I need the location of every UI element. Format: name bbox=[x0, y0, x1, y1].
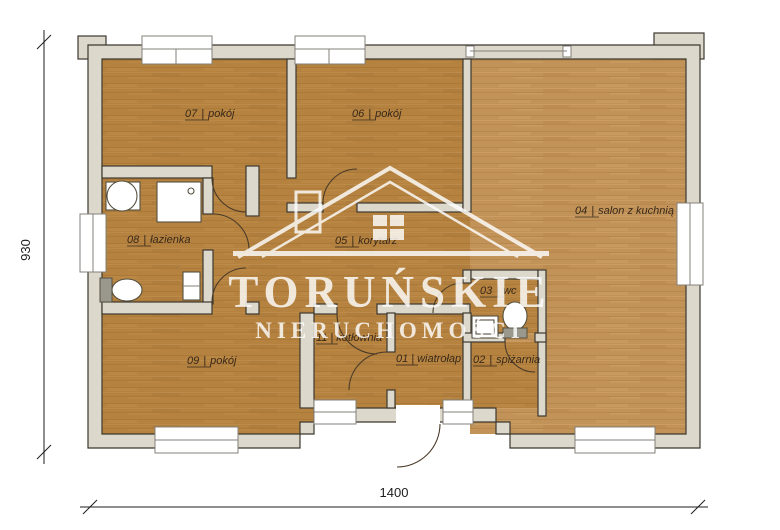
window-room07 bbox=[142, 36, 212, 64]
watermark-title: TORUŃSKIE bbox=[228, 267, 551, 317]
wall-bathroom-right-lower bbox=[203, 250, 213, 304]
floor-plan-canvas: 07|pokój 06|pokój 04|salon z kuchnią 08|… bbox=[0, 0, 780, 530]
room-label-08: 08|łazienka bbox=[127, 234, 190, 246]
wall-wc-spizarnia-right bbox=[535, 333, 546, 342]
floor-plan-drawing: 07|pokój 06|pokój 04|salon z kuchnią 08|… bbox=[0, 0, 780, 530]
window-room06 bbox=[295, 36, 365, 64]
room-label-06: 06|pokój bbox=[352, 108, 402, 120]
entrance-door-arc bbox=[397, 424, 440, 467]
wall-bathroom-right-upper bbox=[203, 178, 213, 214]
wall-bathroom-top bbox=[102, 166, 212, 178]
room-label-05: 05|korytarz bbox=[335, 235, 398, 247]
wall-stub-room07 bbox=[246, 166, 259, 216]
wall-boiler-vestibule-lower bbox=[387, 390, 395, 408]
toilet-tank-icon bbox=[100, 278, 112, 302]
toilet-bowl-icon bbox=[112, 279, 142, 301]
room-label-01: 01|wiatrołap bbox=[396, 353, 461, 365]
room-label-07: 07|pokój bbox=[185, 108, 235, 120]
wall-room06-salon bbox=[463, 59, 471, 212]
wall-room07-room06 bbox=[287, 59, 296, 178]
wall-corridor-top-right bbox=[357, 203, 463, 212]
width-dimension-label: 1400 bbox=[380, 485, 409, 500]
entrance-door-opening bbox=[396, 405, 440, 424]
washbasin-icon bbox=[107, 181, 137, 211]
watermark-subtitle: NIERUCHOMOŚCI bbox=[255, 317, 524, 343]
wall-bathroom-bottom bbox=[102, 302, 212, 314]
height-dimension-label: 930 bbox=[18, 239, 33, 261]
shower-drain-icon bbox=[188, 188, 194, 194]
room-label-02: 02|spiżarnia bbox=[473, 354, 540, 366]
room-floor-spizarnia bbox=[471, 342, 538, 408]
shower-tray-icon bbox=[157, 182, 201, 222]
room-label-09: 09|pokój bbox=[187, 355, 237, 367]
